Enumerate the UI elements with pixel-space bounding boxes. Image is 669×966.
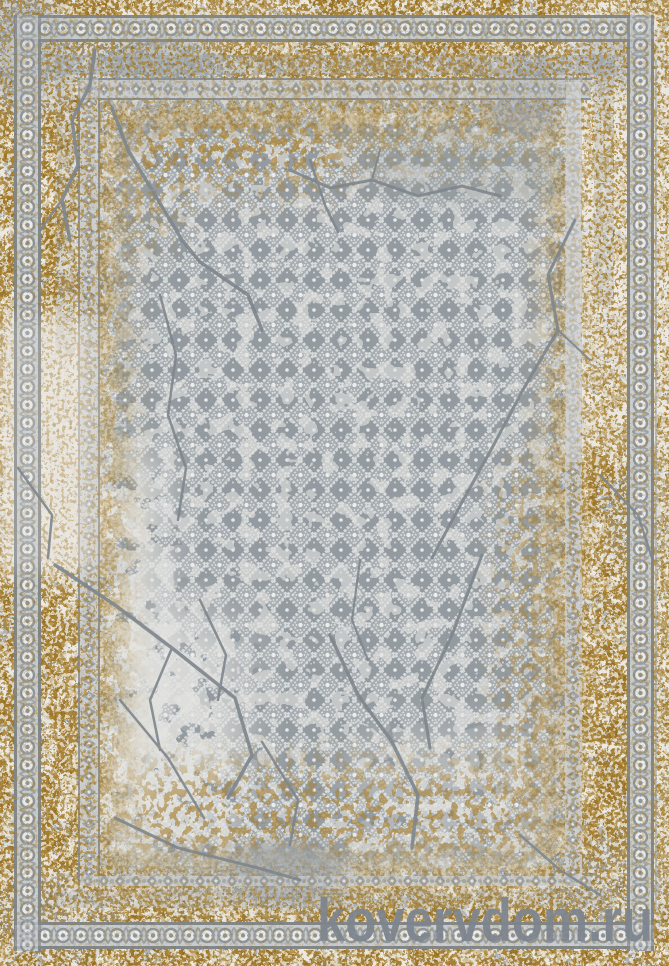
svg-text:kovervdom.ru: kovervdom.ru xyxy=(317,887,653,954)
